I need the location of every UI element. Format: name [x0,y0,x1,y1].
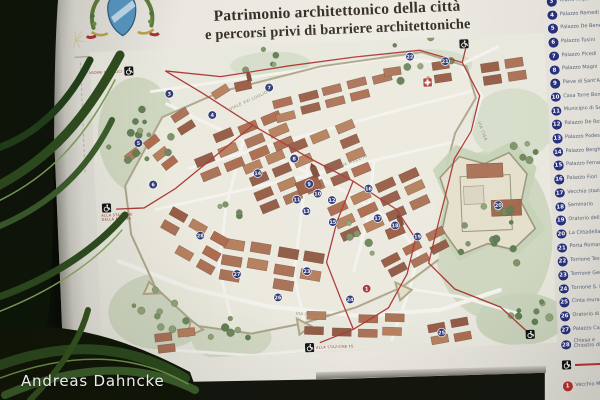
foliage [0,0,600,400]
photographer-credit: Andreas Dahncke [21,372,165,390]
photo-of-city-map-sign: Patrimonio architettonico della città e … [0,0,600,400]
dried-flower-head [73,31,84,49]
